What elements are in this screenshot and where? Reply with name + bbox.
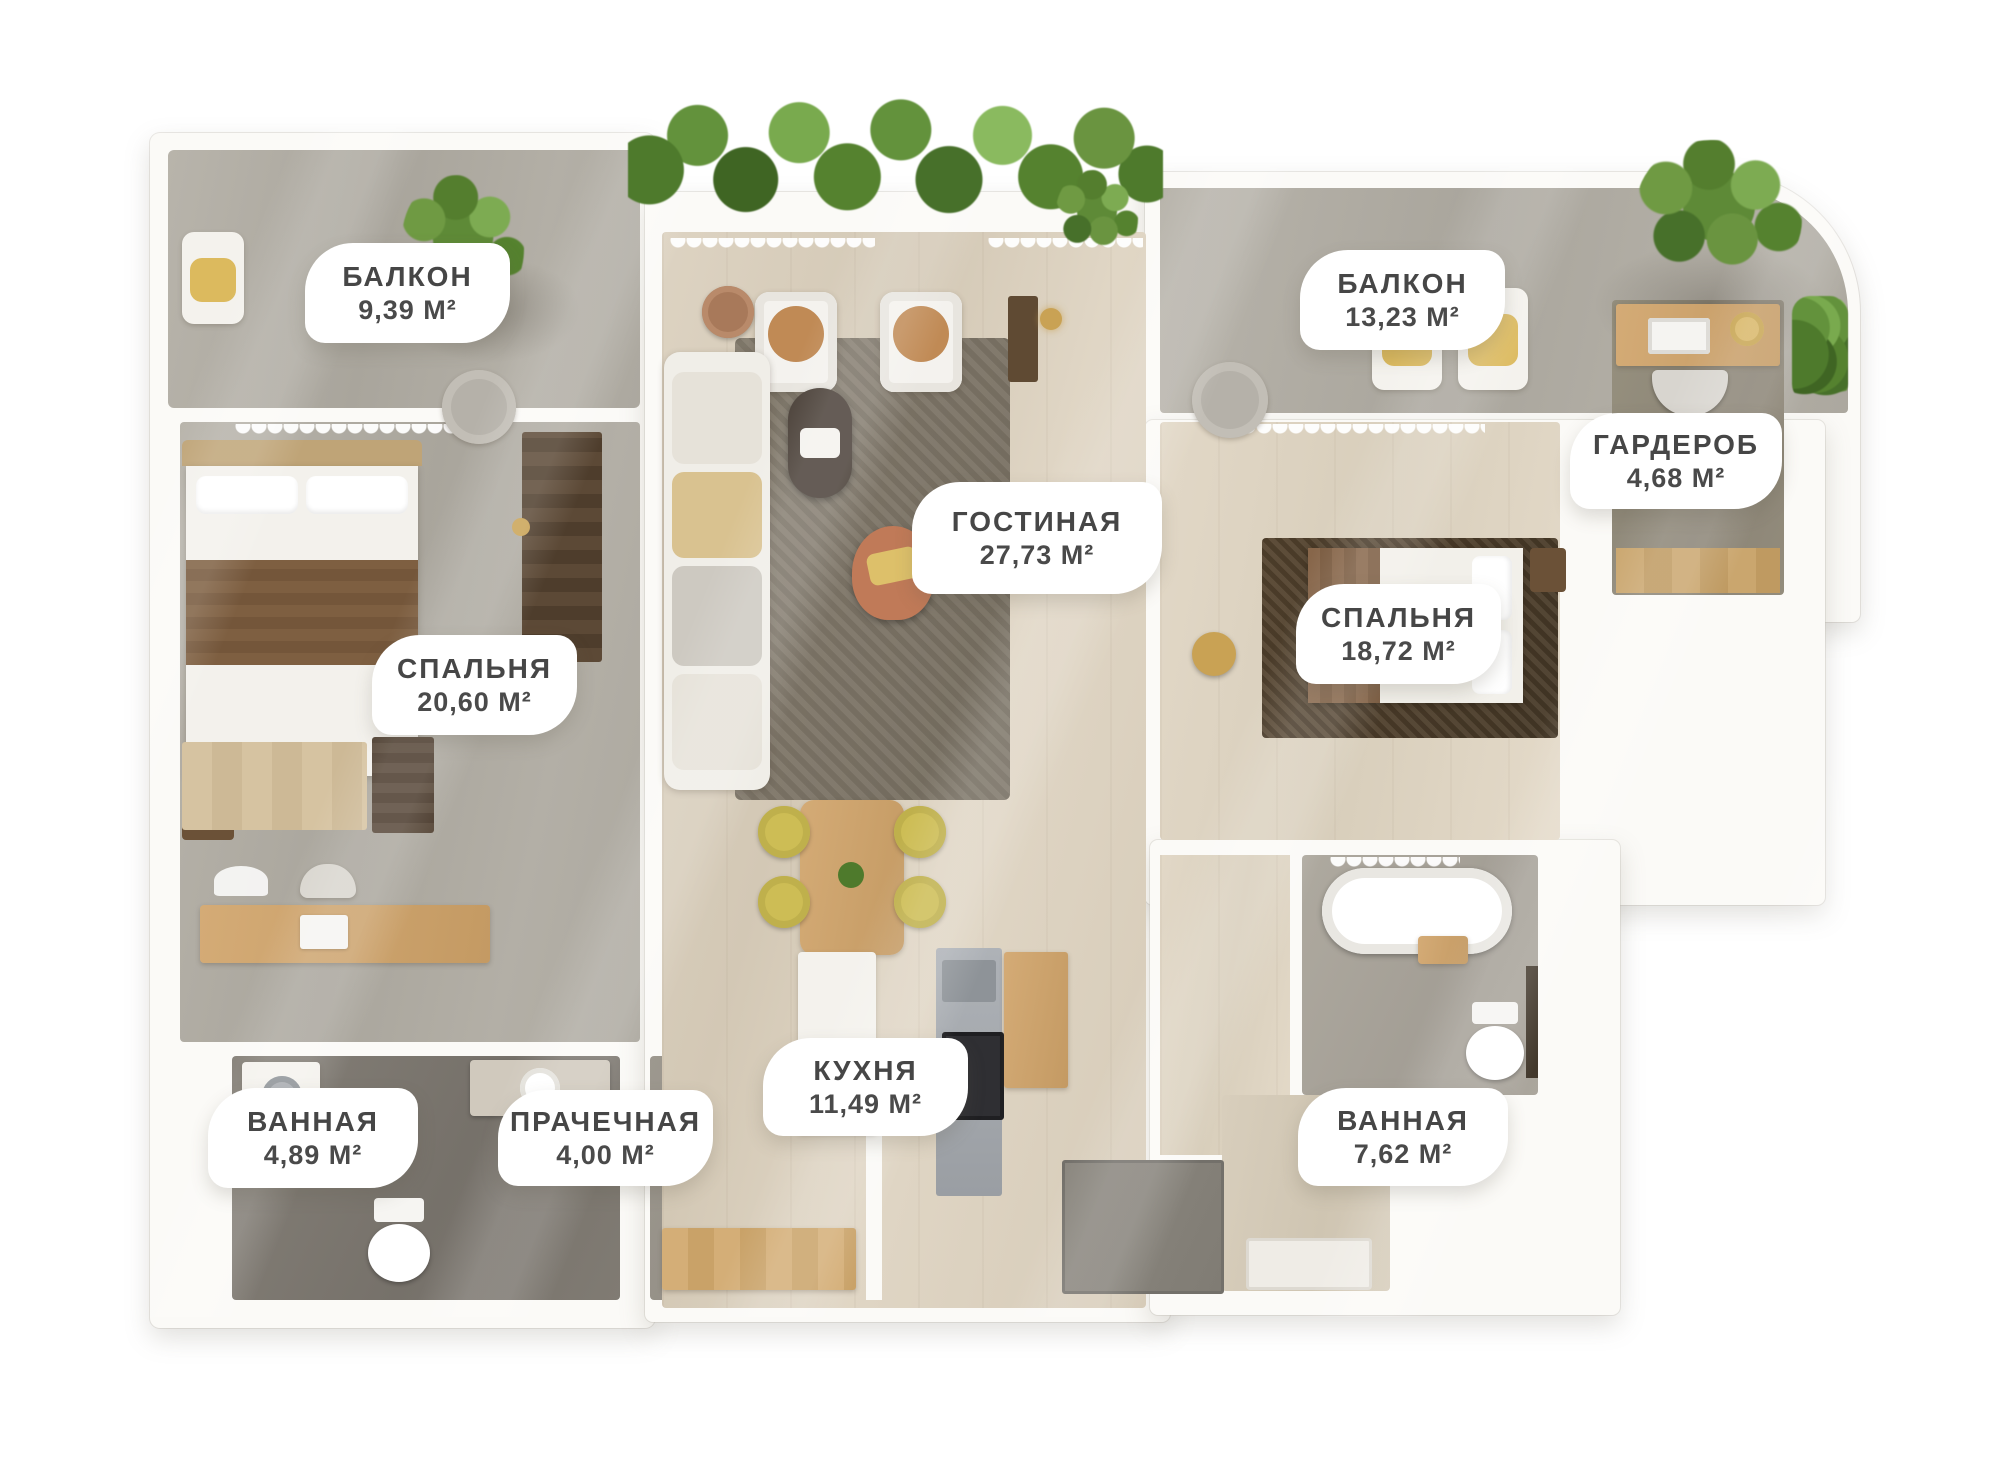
sofa-cushion-tan xyxy=(672,472,762,558)
bed-pillow xyxy=(306,476,408,514)
label-wardrobe: ГАРДЕРОБ 4,68 М² xyxy=(1570,413,1782,509)
armchair-cushion xyxy=(893,306,949,362)
bathroom-door xyxy=(1526,966,1538,1078)
dining-chair xyxy=(758,876,810,928)
room-area: 4,00 М² xyxy=(556,1141,655,1169)
sofa-cushion xyxy=(672,372,762,464)
mirror xyxy=(214,866,268,896)
floor-lamp xyxy=(1040,308,1062,330)
coffee-table-tray xyxy=(800,428,840,458)
dining-chair xyxy=(894,806,946,858)
gold-pouf xyxy=(1192,632,1236,676)
room-area: 27,73 М² xyxy=(980,541,1095,569)
wardrobe-wood-floor xyxy=(1616,548,1780,593)
label-balcony-left: БАЛКОН 9,39 М² xyxy=(305,243,510,343)
floorplan-canvas: БАЛКОН 9,39 М² ГОСТИНАЯ 27,73 М² БАЛКОН … xyxy=(0,0,2000,1470)
laptop xyxy=(300,915,348,949)
plant-balcony-right xyxy=(1636,140,1802,290)
bed-headboard xyxy=(182,440,422,466)
laundry-bench xyxy=(662,1228,856,1290)
toilet-bowl xyxy=(1466,1026,1524,1080)
label-laundry: ПРАЧЕЧНАЯ 4,00 М² xyxy=(498,1090,713,1186)
room-area: 9,39 М² xyxy=(358,296,457,324)
label-bathroom-right: ВАННАЯ 7,62 М² xyxy=(1298,1088,1508,1186)
vanity-bench xyxy=(1246,1238,1372,1290)
room-name: БАЛКОН xyxy=(342,262,472,291)
nightstand xyxy=(1530,548,1566,592)
gold-lamp xyxy=(512,518,530,536)
round-armchair xyxy=(442,370,516,444)
wood-rug xyxy=(182,742,367,830)
lounge-chair-cushion xyxy=(190,258,236,302)
keyboard xyxy=(1648,318,1710,354)
room-name: ГАРДЕРОБ xyxy=(1593,430,1759,459)
label-bathroom-left: ВАННАЯ 4,89 М² xyxy=(208,1088,418,1188)
label-bedroom-right: СПАЛЬНЯ 18,72 М² xyxy=(1296,584,1501,684)
room-area: 4,89 М² xyxy=(264,1141,363,1169)
tv-cabinet xyxy=(1008,296,1038,382)
table-plant xyxy=(838,862,864,888)
room-area: 7,62 М² xyxy=(1354,1140,1453,1168)
label-living-room: ГОСТИНАЯ 27,73 М² xyxy=(912,482,1162,594)
sofa-cushion xyxy=(672,674,762,770)
microwave xyxy=(942,960,996,1002)
room-name: СПАЛЬНЯ xyxy=(1321,603,1476,632)
toilet-bowl xyxy=(368,1224,430,1282)
room-area: 11,49 М² xyxy=(809,1090,922,1118)
curtain-frill xyxy=(235,424,465,438)
kitchen-cabinet xyxy=(1004,952,1068,1088)
room-name: ГОСТИНАЯ xyxy=(952,507,1123,536)
room-name: КУХНЯ xyxy=(813,1056,917,1085)
bed-blanket xyxy=(186,560,418,665)
round-armchair xyxy=(1192,362,1268,438)
room-name: ПРАЧЕЧНАЯ xyxy=(510,1107,701,1136)
room-area: 18,72 М² xyxy=(1341,637,1456,665)
bathtub xyxy=(1322,868,1512,954)
toilet-tank xyxy=(374,1198,424,1222)
label-bedroom-left: СПАЛЬНЯ 20,60 М² xyxy=(372,635,577,735)
side-table xyxy=(702,286,754,338)
label-kitchen: КУХНЯ 11,49 М² xyxy=(763,1038,968,1136)
bath-caddy xyxy=(1418,936,1468,964)
dining-chair xyxy=(894,876,946,928)
plant-living-corner xyxy=(1056,170,1138,262)
dining-chair xyxy=(758,806,810,858)
closet xyxy=(372,737,434,833)
label-balcony-right: БАЛКОН 13,23 М² xyxy=(1300,250,1505,350)
room-area: 4,68 М² xyxy=(1627,464,1726,492)
room-name: СПАЛЬНЯ xyxy=(397,654,552,683)
room-area: 20,60 М² xyxy=(417,688,532,716)
toilet-tank xyxy=(1472,1002,1518,1024)
desk-lamp xyxy=(1730,312,1764,346)
sofa-throw xyxy=(672,566,762,666)
curtain-frill xyxy=(670,238,875,252)
bed-pillow xyxy=(196,476,298,514)
room-name: ВАННАЯ xyxy=(247,1107,379,1136)
wardrobe-cabinet xyxy=(522,432,602,662)
entry-mat xyxy=(1062,1160,1224,1294)
room-name: ВАННАЯ xyxy=(1337,1106,1469,1135)
curtain-frill xyxy=(1240,424,1485,438)
room-name: БАЛКОН xyxy=(1337,269,1467,298)
hedge-right-strip xyxy=(1792,296,1848,402)
armchair-cushion xyxy=(768,306,824,362)
room-area: 13,23 М² xyxy=(1345,303,1460,331)
